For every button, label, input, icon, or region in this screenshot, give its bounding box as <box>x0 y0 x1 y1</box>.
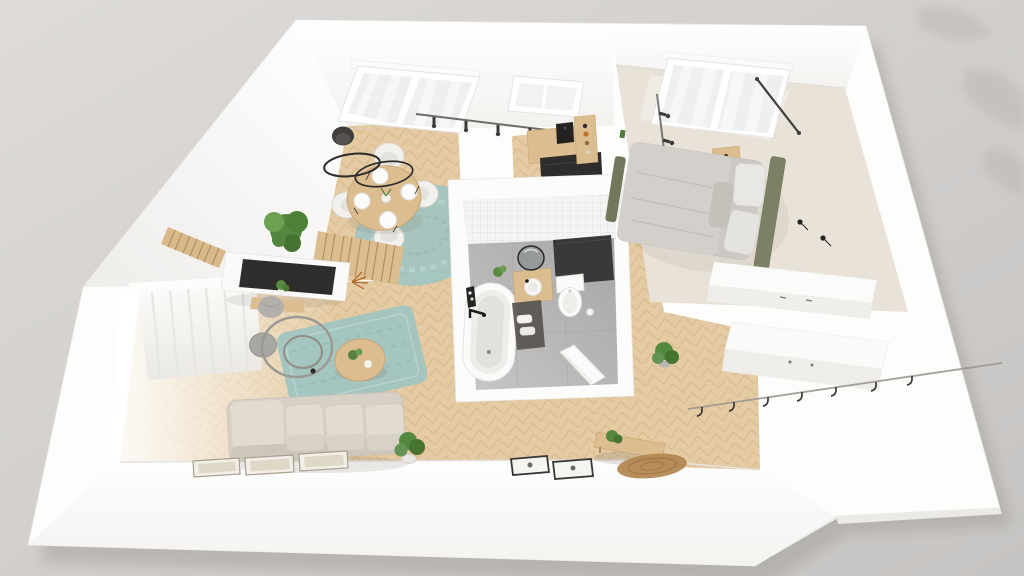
coffee-machine-dial <box>564 127 567 130</box>
back-cushion <box>286 434 325 452</box>
dome-pendant-inner <box>336 133 351 145</box>
plant-foliage <box>272 233 286 247</box>
plant-foliage <box>395 444 408 457</box>
bench-plant <box>614 435 623 444</box>
plant-foliage <box>409 439 425 455</box>
chaise-cushion <box>230 400 284 449</box>
shelf-jar <box>585 141 589 145</box>
shelf-jar <box>583 131 588 136</box>
rolled-towel <box>520 327 536 336</box>
basin-inner <box>528 282 538 292</box>
track-light-spot-head <box>432 124 436 128</box>
track-light-spot-head <box>496 132 500 136</box>
toilet <box>556 274 584 317</box>
flush-button <box>568 289 571 292</box>
track-light-spot-head <box>666 114 670 118</box>
shelf-plant <box>283 285 290 292</box>
plant-foliage <box>264 212 284 232</box>
plate <box>401 184 417 200</box>
chair-seat <box>380 152 398 166</box>
track-light-spot-head <box>464 128 468 132</box>
bathroom-plant <box>500 266 507 273</box>
wardrobe-handle <box>811 364 814 367</box>
bath-bottle <box>470 297 473 300</box>
faucet-spout <box>482 313 486 317</box>
track-light-spot <box>663 140 670 142</box>
track-light-spot-head <box>670 141 674 145</box>
toilet-paper-holder <box>587 309 594 316</box>
rod-finial <box>755 77 759 81</box>
table-dish <box>364 360 372 368</box>
shelf-jar <box>586 150 590 154</box>
bathroom <box>448 174 634 402</box>
table-plant <box>356 349 363 356</box>
coffee-machine <box>556 122 574 144</box>
toilet-seat <box>563 293 578 314</box>
back-cushion <box>326 433 365 451</box>
pillow <box>733 163 766 207</box>
doormat-motif <box>571 466 576 471</box>
floor-lamp-base <box>310 368 315 373</box>
kitchen-shelf-unit <box>574 115 598 164</box>
track-light-spot <box>659 113 666 115</box>
plate <box>380 212 397 229</box>
floor-plan-render <box>0 0 1024 576</box>
shelf-jar <box>583 124 587 128</box>
plate <box>354 193 370 209</box>
rolled-towel <box>517 315 533 324</box>
basin-tap <box>525 279 529 283</box>
dining-window <box>338 60 480 133</box>
bathtub-basin <box>475 295 505 368</box>
rod-finial <box>797 131 801 135</box>
plant-foliage <box>283 234 301 252</box>
plant-foliage <box>652 352 664 364</box>
plant-foliage <box>665 350 679 364</box>
plant-pot <box>402 455 416 464</box>
sofa <box>226 391 405 462</box>
doormat-motif <box>528 463 533 468</box>
wardrobe-handle <box>789 361 792 364</box>
plant-foliage <box>286 211 308 233</box>
bath-mat <box>512 300 545 350</box>
bath-bottle <box>468 291 471 294</box>
table-vase <box>382 194 391 203</box>
